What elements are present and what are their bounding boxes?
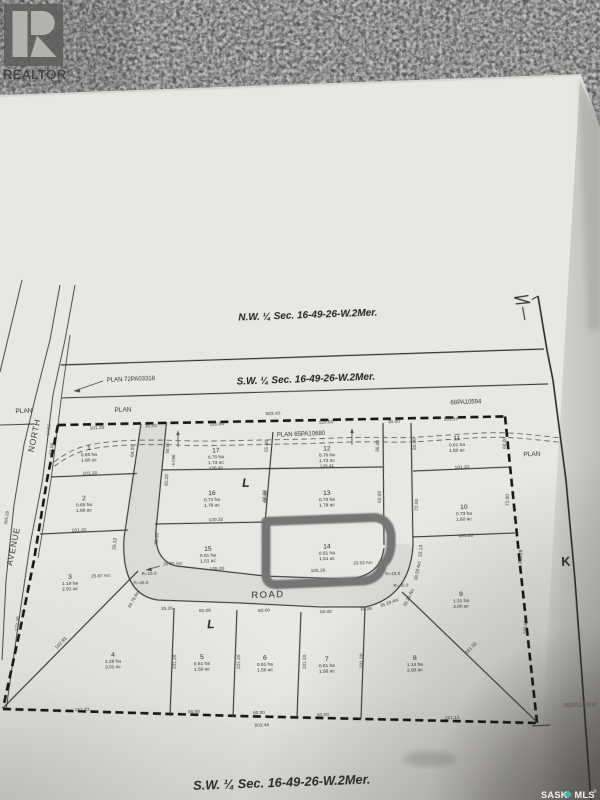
- svg-text:3.00 ac: 3.00 ac: [453, 603, 470, 610]
- svg-text:ROAD: ROAD: [251, 589, 284, 601]
- svg-text:11: 11: [453, 435, 461, 442]
- svg-text:0.73 ha: 0.73 ha: [319, 497, 336, 504]
- svg-text:13: 13: [323, 490, 331, 497]
- svg-text:1.79 ac: 1.79 ac: [204, 502, 221, 509]
- svg-text:10: 10: [460, 504, 468, 511]
- svg-text:120.41: 120.41: [320, 463, 335, 469]
- svg-text:15: 15: [204, 546, 212, 553]
- svg-text:30.00: 30.00: [145, 423, 158, 429]
- svg-text:60.00: 60.00: [262, 490, 268, 502]
- svg-text:101.20: 101.20: [302, 654, 308, 669]
- svg-text:120.42: 120.42: [209, 465, 224, 471]
- svg-text:60.00: 60.00: [502, 437, 508, 449]
- svg-text:63.00: 63.00: [377, 491, 383, 503]
- svg-text:1.51 ac: 1.51 ac: [200, 558, 217, 565]
- svg-text:26.13: 26.13: [111, 537, 118, 550]
- svg-text:101.20: 101.20: [82, 470, 97, 477]
- svg-text:R=45.0: R=45.0: [393, 583, 409, 589]
- svg-text:101.20: 101.20: [72, 527, 87, 534]
- svg-text:0.61 ha: 0.61 ha: [319, 550, 336, 557]
- svg-text:105.26: 105.26: [210, 566, 225, 573]
- svg-text:R=15.0: R=15.0: [385, 571, 401, 577]
- svg-text:5: 5: [200, 654, 204, 661]
- svg-text:0.65 ha: 0.65 ha: [81, 452, 98, 459]
- svg-text:105.26: 105.26: [311, 568, 326, 575]
- svg-text:36.10: 36.10: [153, 532, 160, 545]
- svg-text:1.50 ac: 1.50 ac: [194, 666, 211, 673]
- svg-text:PLAN: PLAN: [114, 407, 132, 415]
- svg-text:4: 4: [111, 652, 115, 659]
- svg-text:1.60 ac: 1.60 ac: [81, 457, 98, 464]
- svg-text:1.60 ac: 1.60 ac: [76, 507, 93, 514]
- svg-text:K: K: [561, 555, 571, 569]
- svg-text:2.91 ac: 2.91 ac: [62, 586, 79, 593]
- svg-text:L: L: [242, 476, 250, 490]
- svg-text:60.00: 60.00: [188, 709, 201, 715]
- svg-text:101.20: 101.20: [458, 533, 473, 540]
- svg-text:502.46: 502.46: [255, 722, 270, 729]
- svg-text:SASK: SASK: [541, 790, 568, 800]
- svg-text:101.20: 101.20: [172, 654, 178, 669]
- svg-text:2.92 ac: 2.92 ac: [407, 667, 424, 674]
- svg-text:6.096: 6.096: [171, 454, 176, 466]
- svg-text:22.13: 22.13: [418, 544, 425, 557]
- svg-text:8: 8: [413, 655, 417, 662]
- svg-text:101.20: 101.20: [236, 654, 242, 669]
- svg-text:72.00: 72.00: [414, 499, 420, 511]
- svg-text:120.50: 120.50: [210, 421, 225, 428]
- svg-text:60.00: 60.00: [258, 608, 271, 614]
- svg-text:101.20: 101.20: [455, 464, 470, 471]
- svg-text:REALTOR: REALTOR: [3, 67, 67, 82]
- svg-text:12: 12: [323, 445, 331, 452]
- svg-text:23.53 Arc: 23.53 Arc: [353, 560, 373, 566]
- svg-text:1.79 ac: 1.79 ac: [319, 502, 336, 509]
- svg-text:36.00: 36.00: [375, 440, 381, 452]
- svg-text:R=15.0: R=15.0: [141, 571, 157, 577]
- svg-text:60.00: 60.00: [412, 438, 418, 450]
- svg-text:14: 14: [323, 543, 331, 550]
- svg-text:2: 2: [82, 495, 86, 502]
- svg-text:60.00: 60.00: [253, 710, 266, 716]
- svg-text:101.20: 101.20: [443, 416, 458, 423]
- svg-text:R=45.0: R=45.0: [133, 580, 149, 586]
- svg-text:1.51 ac: 1.51 ac: [319, 556, 336, 563]
- svg-text:1: 1: [87, 445, 91, 452]
- svg-text:58.00: 58.00: [165, 442, 170, 454]
- svg-text:7: 7: [325, 656, 329, 663]
- svg-text:30.00: 30.00: [388, 419, 401, 425]
- svg-text:168.09: 168.09: [523, 619, 530, 634]
- svg-text:09PA15004: 09PA15004: [563, 701, 597, 709]
- svg-text:6: 6: [263, 655, 267, 662]
- svg-text:1.50 ac: 1.50 ac: [319, 668, 336, 675]
- svg-text:101.20: 101.20: [359, 653, 365, 668]
- svg-text:60.00: 60.00: [317, 712, 330, 718]
- svg-text:9: 9: [459, 591, 463, 598]
- svg-text:64.00: 64.00: [130, 444, 137, 457]
- svg-text:151.13: 151.13: [445, 715, 460, 722]
- svg-text:PLAN: PLAN: [523, 451, 541, 459]
- svg-text:15.26: 15.26: [360, 606, 373, 612]
- svg-text:3: 3: [68, 574, 72, 581]
- svg-text:120.32: 120.32: [209, 517, 224, 524]
- svg-text:72.00: 72.00: [505, 494, 511, 506]
- svg-text:®: ®: [64, 65, 69, 72]
- svg-text:3.01 ac: 3.01 ac: [105, 664, 122, 671]
- svg-text:101.20: 101.20: [90, 425, 105, 432]
- svg-text:60.00: 60.00: [320, 609, 333, 615]
- svg-text:161.33: 161.33: [75, 707, 90, 714]
- svg-text:15.26: 15.26: [161, 606, 174, 612]
- svg-text:1.50 ac: 1.50 ac: [257, 667, 274, 674]
- svg-text:60.00: 60.00: [199, 608, 212, 614]
- svg-text:23.55 Arc: 23.55 Arc: [163, 561, 183, 567]
- svg-text:60.00: 60.00: [164, 473, 171, 486]
- svg-text:16: 16: [208, 490, 216, 497]
- svg-text:68PA10594: 68PA10594: [450, 399, 482, 406]
- svg-text:17: 17: [212, 447, 220, 454]
- svg-text:55.00: 55.00: [264, 440, 270, 452]
- svg-text:300.29: 300.29: [518, 549, 525, 564]
- svg-text:L: L: [207, 617, 215, 631]
- svg-text:120.50: 120.50: [319, 419, 334, 426]
- svg-text:25.87 Arc: 25.87 Arc: [91, 573, 111, 579]
- svg-text:1.60 ac: 1.60 ac: [456, 516, 473, 523]
- svg-text:PLAN: PLAN: [15, 408, 33, 416]
- svg-text:MLS: MLS: [575, 790, 595, 800]
- svg-text:0.73 ha: 0.73 ha: [456, 511, 473, 518]
- svg-text:1.50 ac: 1.50 ac: [449, 447, 466, 454]
- svg-text:503.40: 503.40: [266, 411, 281, 418]
